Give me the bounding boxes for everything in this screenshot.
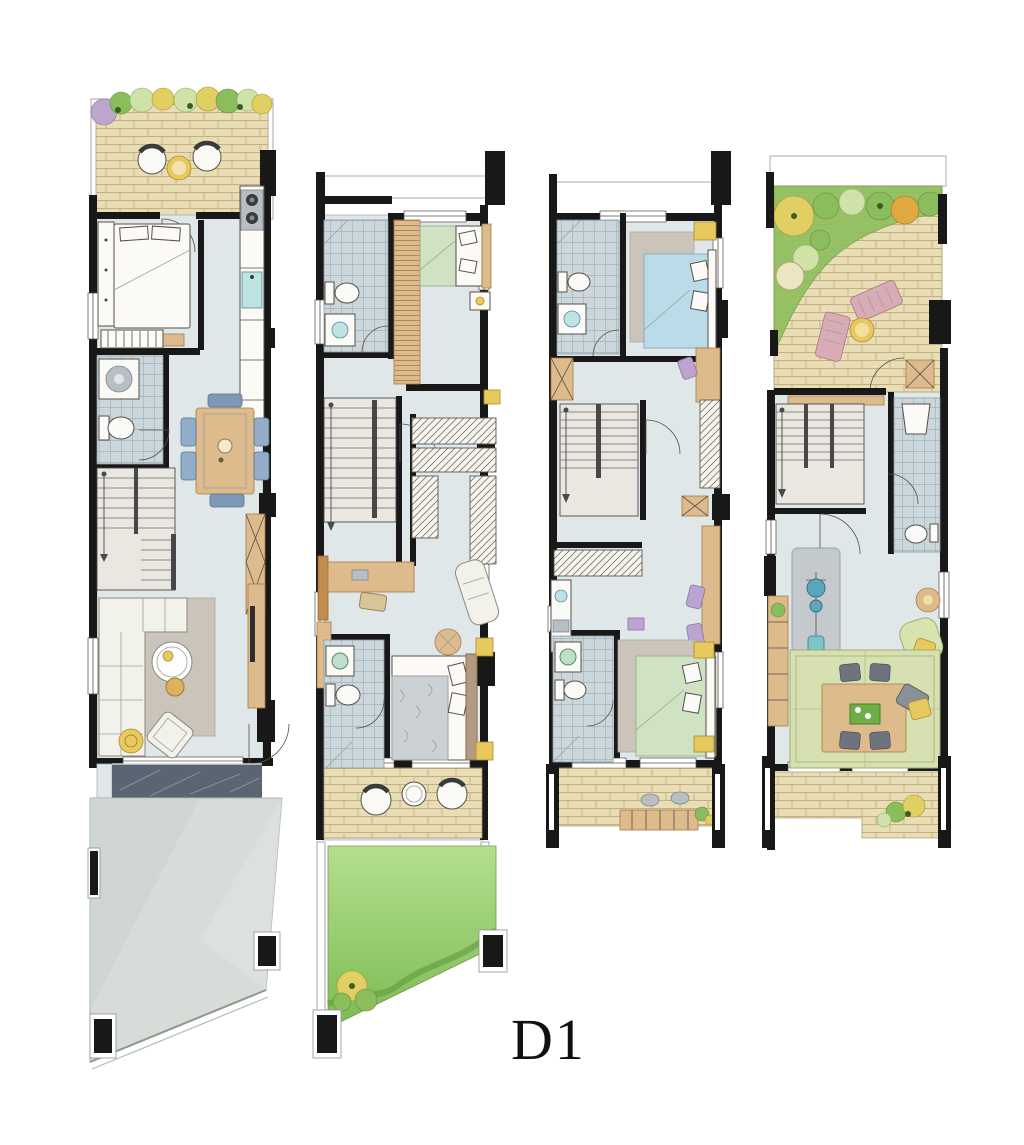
unit-type-label: D1 bbox=[511, 1008, 586, 1072]
floorplan-sheet: D1 bbox=[0, 0, 1024, 1145]
desk bbox=[702, 526, 720, 644]
wardrobe-x bbox=[551, 358, 573, 400]
toilet bbox=[336, 685, 360, 705]
lawn-garden bbox=[313, 842, 507, 1058]
eave-band bbox=[322, 176, 486, 198]
tea-tray bbox=[850, 704, 880, 724]
stairs bbox=[97, 468, 176, 590]
bathroom bbox=[557, 220, 619, 356]
kitchen bbox=[240, 186, 264, 436]
floor-plan-3 bbox=[546, 151, 731, 848]
tv bbox=[250, 606, 255, 662]
nightstand bbox=[694, 222, 716, 240]
desk-chair bbox=[359, 592, 387, 611]
roof-garden-terrace bbox=[774, 186, 942, 392]
toilet bbox=[108, 417, 134, 439]
basin bbox=[902, 404, 930, 434]
wardrobe bbox=[394, 220, 420, 384]
terrace bbox=[324, 768, 482, 838]
toilet bbox=[564, 681, 586, 699]
entry-porch bbox=[97, 764, 262, 798]
balcony bbox=[546, 764, 725, 848]
floor-plan-1 bbox=[88, 87, 289, 1069]
stairs bbox=[776, 404, 864, 504]
nightstand bbox=[476, 742, 493, 760]
toilet bbox=[335, 283, 359, 303]
desk bbox=[696, 348, 720, 402]
stairs bbox=[324, 398, 396, 531]
bathroom bbox=[888, 398, 940, 552]
master-bathroom bbox=[324, 640, 384, 770]
side-table bbox=[166, 678, 184, 696]
pouf bbox=[119, 729, 143, 753]
nightstand bbox=[476, 638, 493, 656]
toilet bbox=[568, 273, 590, 291]
desk bbox=[328, 562, 414, 592]
bathroom-2 bbox=[553, 636, 613, 762]
tatami-room bbox=[790, 650, 940, 768]
driveway bbox=[88, 798, 282, 1069]
eave-band bbox=[770, 156, 946, 186]
floor-plans-graphic bbox=[0, 0, 1024, 1145]
eave-band bbox=[556, 182, 716, 214]
exercise-machine bbox=[807, 579, 825, 597]
floor-plan-2 bbox=[313, 151, 507, 1058]
coffee-table bbox=[152, 642, 192, 682]
bathroom bbox=[324, 220, 388, 352]
floor-plan-4 bbox=[762, 156, 951, 850]
toilet bbox=[905, 525, 927, 543]
